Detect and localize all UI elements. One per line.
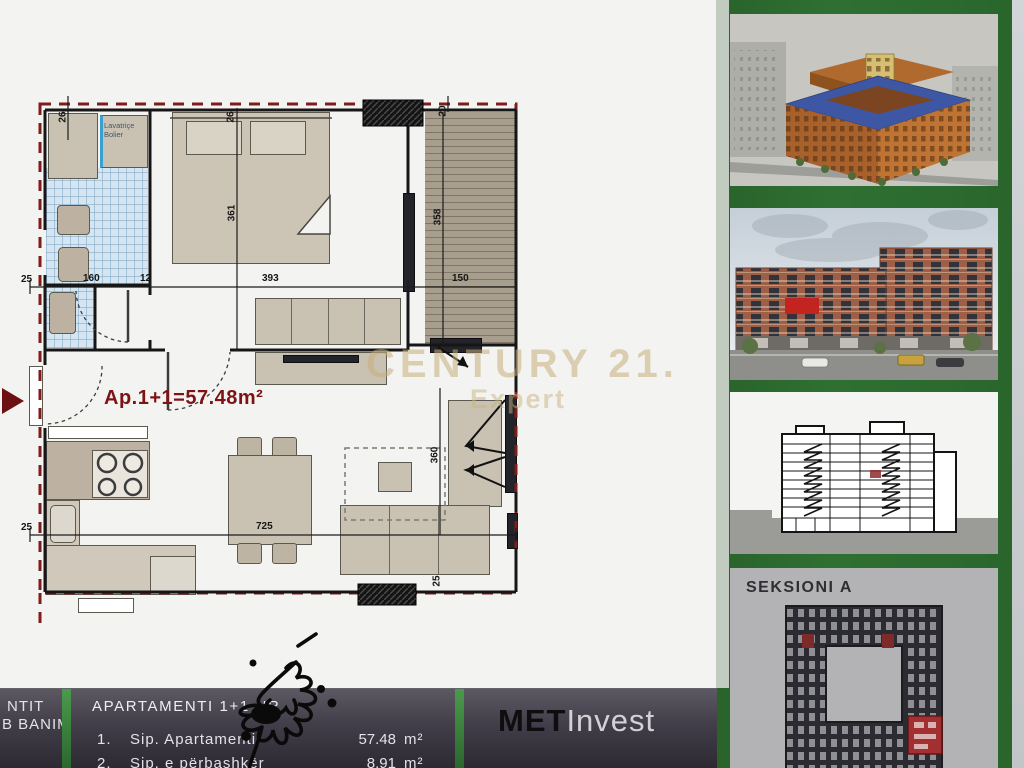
dim-label: 20 <box>439 105 449 116</box>
dim-label: 26 <box>227 111 237 122</box>
brochure-page: Lavatriçe Bolier <box>0 0 1024 768</box>
shaft-hatch-bottom <box>358 584 416 605</box>
watermark-expert: Expert <box>470 386 566 413</box>
row-no: 2. <box>97 755 112 768</box>
sidebar: SEKSIONI A <box>716 0 1012 768</box>
green-divider <box>62 689 71 768</box>
building-plate-image: SEKSIONI A <box>730 568 998 768</box>
info-left-line2: B BANIM <box>2 716 71 734</box>
row-unit: m² <box>404 755 424 768</box>
dim-label: 361 <box>227 205 237 222</box>
logo-invest: Invest <box>566 703 655 738</box>
dim-label: 25 <box>21 523 32 533</box>
arrowhead <box>466 464 474 476</box>
aerial-render-image <box>730 14 998 186</box>
info-left-line1: NTIT <box>7 698 44 716</box>
row-no: 1. <box>97 731 112 749</box>
dim-label: 12 <box>140 274 151 284</box>
section-drawing-image <box>730 392 998 554</box>
shaft-hatch-top <box>363 100 423 126</box>
logo-met: MET <box>498 703 566 738</box>
row-unit: m² <box>404 731 424 749</box>
dim-label: 25 <box>21 275 32 285</box>
dim-label: 26 <box>59 111 69 122</box>
pen-scribble <box>210 632 400 768</box>
street-render-image <box>730 208 998 380</box>
green-divider <box>455 689 464 768</box>
highlighted-unit <box>785 298 819 314</box>
stove-burners <box>98 454 142 495</box>
dim-label: 358 <box>433 209 443 226</box>
sidebar-left-gap <box>716 0 729 688</box>
dim-label: 393 <box>262 274 279 284</box>
page-right-edge <box>1012 0 1024 768</box>
metinvest-logo: METInvest <box>498 705 655 736</box>
dim-label: 25 <box>433 575 443 586</box>
entrance-arrow <box>2 388 24 414</box>
watermark-century21: CENTURY 21. <box>366 344 679 384</box>
dim-label: 160 <box>83 274 100 284</box>
dim-label: 360 <box>430 447 440 464</box>
dim-label: 150 <box>452 274 469 284</box>
dimension-lines <box>30 96 516 542</box>
dim-label: 725 <box>256 522 273 532</box>
section-a-label: SEKSIONI A <box>746 580 853 596</box>
apartment-area-label: Ap.1+1=57.48m² <box>104 388 263 408</box>
